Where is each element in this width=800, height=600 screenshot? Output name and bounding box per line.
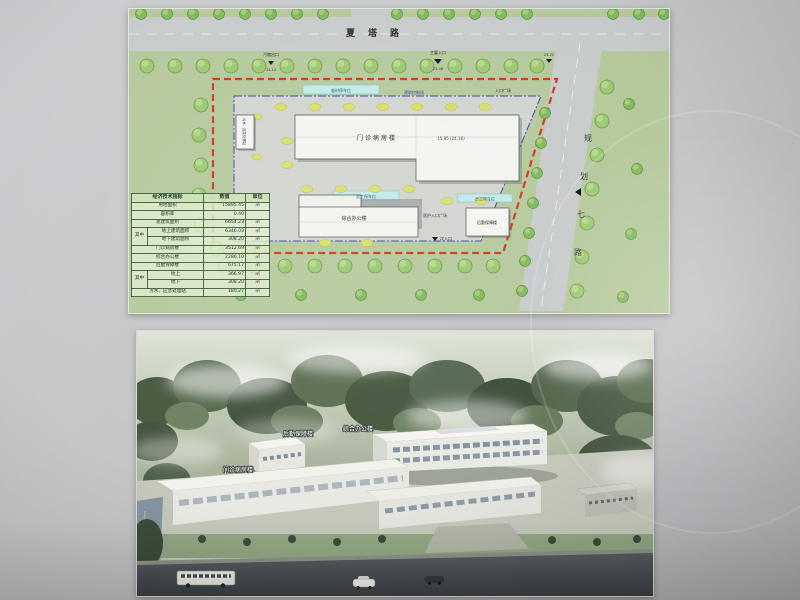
indicator-unit: ㎡: [246, 279, 270, 288]
table-row: 污水、应急处理站 180.27 ㎡: [132, 288, 270, 297]
staff-parking-label: 员工停车位: [356, 193, 376, 199]
indicator-value: 6654.23: [204, 219, 246, 228]
sewage-station-building: [577, 483, 637, 517]
indicator-unit: ㎡: [246, 219, 270, 228]
aerial-rendering-panel: 后勤保障楼 综合办公楼 门诊病房楼: [136, 330, 654, 597]
tree-row-south-of-road: [140, 59, 544, 73]
indicator-name: 总建筑面积: [132, 219, 204, 228]
road-north-branch: [351, 9, 391, 19]
indicator-name: 综合办公楼: [132, 254, 204, 263]
sewage-building-label: 污水、应急处理站: [242, 118, 247, 146]
logistics-rendering-label: 后勤保障楼: [283, 430, 313, 438]
table-row: 地下 308.20 ㎡: [132, 279, 270, 288]
elevation-value: 23.46: [433, 67, 444, 71]
elevation-value: 23.14: [266, 68, 277, 72]
table-row: 后勤保障楼 675.17 ㎡: [132, 262, 270, 271]
road7-char: 划: [580, 171, 588, 181]
setback-line-label: 建筑控制线: [404, 89, 424, 95]
aerial-rendering: 后勤保障楼 综合办公楼 门诊病房楼: [137, 331, 653, 596]
table-header-row: 经济技术指标 数值 单位: [132, 194, 270, 203]
col-value-header: 数值: [204, 194, 246, 203]
indicator-value: 2286.10: [204, 254, 246, 263]
table-row: 用地面积 15895.45 ㎡: [132, 202, 270, 211]
col-unit-header: 单位: [246, 194, 270, 203]
indicator-value: 0.40: [204, 211, 246, 220]
indicator-value: 15895.45: [204, 202, 246, 211]
waste-exit-label: 污物出口: [263, 51, 279, 57]
office-rendering-label: 综合办公楼: [343, 425, 373, 433]
bus: [177, 571, 235, 588]
indicator-name: 污水、应急处理站: [132, 288, 204, 297]
indicator-unit: ㎡: [246, 288, 270, 297]
office-building-label: 综合办公楼: [341, 215, 366, 222]
indicator-unit: ㎡: [246, 254, 270, 263]
site-plan-panel: 污物出口 23.14 主要入口 23.46 23.22 次入口 夏塔路 规: [128, 8, 670, 314]
indicator-value: 180.27: [204, 288, 246, 297]
ward-rendering-label: 门诊病房楼: [223, 466, 253, 474]
secondary-entrance-label: 次入口: [440, 235, 452, 241]
indicator-value: 6346.03: [204, 228, 246, 237]
indicator-name: 门诊病房楼: [132, 245, 204, 254]
indicator-table: 经济技术指标 数值 单位 用地面积 15895.45 ㎡ 容积率 0.40 总建…: [131, 193, 270, 297]
indicator-value: 308.20: [204, 279, 246, 288]
indicator-value: 3512.69: [204, 245, 246, 254]
temp-parking-label: 临时停车位: [331, 87, 351, 93]
road-name-xiata: 夏塔路: [345, 27, 412, 39]
indicator-name: 地下建筑面积: [148, 236, 204, 245]
table-row: 其中 地上 366.97 ㎡: [132, 271, 270, 280]
elevation-value: 23.22: [544, 53, 554, 57]
table-row: 地下建筑面积 308.20 ㎡: [132, 236, 270, 245]
indicator-unit: ㎡: [246, 202, 270, 211]
table-row: 总建筑面积 6654.23 ㎡: [132, 219, 270, 228]
table-title: 经济技术指标: [132, 194, 204, 203]
indicator-unit: [246, 211, 270, 220]
ward-elevation-label: 15.95 (24.16): [437, 136, 465, 141]
indicator-name: 用地面积: [132, 202, 204, 211]
group-cell: 其中: [132, 228, 148, 245]
indicator-value: 308.20: [204, 236, 246, 245]
logistics-building-label: 后勤保障楼: [477, 219, 497, 225]
entry-plaza-label: 入口广场: [495, 87, 511, 93]
table-row: 门诊病房楼 3512.69 ㎡: [132, 245, 270, 254]
indicator-unit: ㎡: [246, 245, 270, 254]
indicator-unit: ㎡: [246, 236, 270, 245]
indicator-unit: ㎡: [246, 271, 270, 280]
main-entrance-label: 主要入口: [430, 49, 446, 55]
staff-parking-label: 员工停车位: [475, 196, 495, 202]
road7-char: 规: [584, 133, 592, 143]
road7-char: 七: [577, 210, 585, 219]
indicator-name: 地下: [148, 279, 204, 288]
road7-char: 路: [574, 247, 582, 257]
indicator-name: 容积率: [132, 211, 204, 220]
indicator-name: 后勤保障楼: [132, 262, 204, 271]
indicator-value: 675.17: [204, 262, 246, 271]
table-row: 其中 地上建筑面积 6346.03 ㎡: [132, 228, 270, 237]
indicator-name: 地上建筑面积: [148, 228, 204, 237]
group-cell: 其中: [132, 271, 148, 288]
table-row: 综合办公楼 2286.10 ㎡: [132, 254, 270, 263]
indicator-value: 366.97: [204, 271, 246, 280]
photo-background: 污物出口 23.14 主要入口 23.46 23.22 次入口 夏塔路 规: [0, 0, 800, 600]
indicator-name: 地上: [148, 271, 204, 280]
table-row: 容积率 0.40: [132, 211, 270, 220]
indicator-unit: ㎡: [246, 228, 270, 237]
nurse-plaza-label: 医护入口广场: [423, 212, 447, 218]
ward-building-label: 门诊病房楼: [357, 134, 397, 142]
indicator-unit: ㎡: [246, 262, 270, 271]
